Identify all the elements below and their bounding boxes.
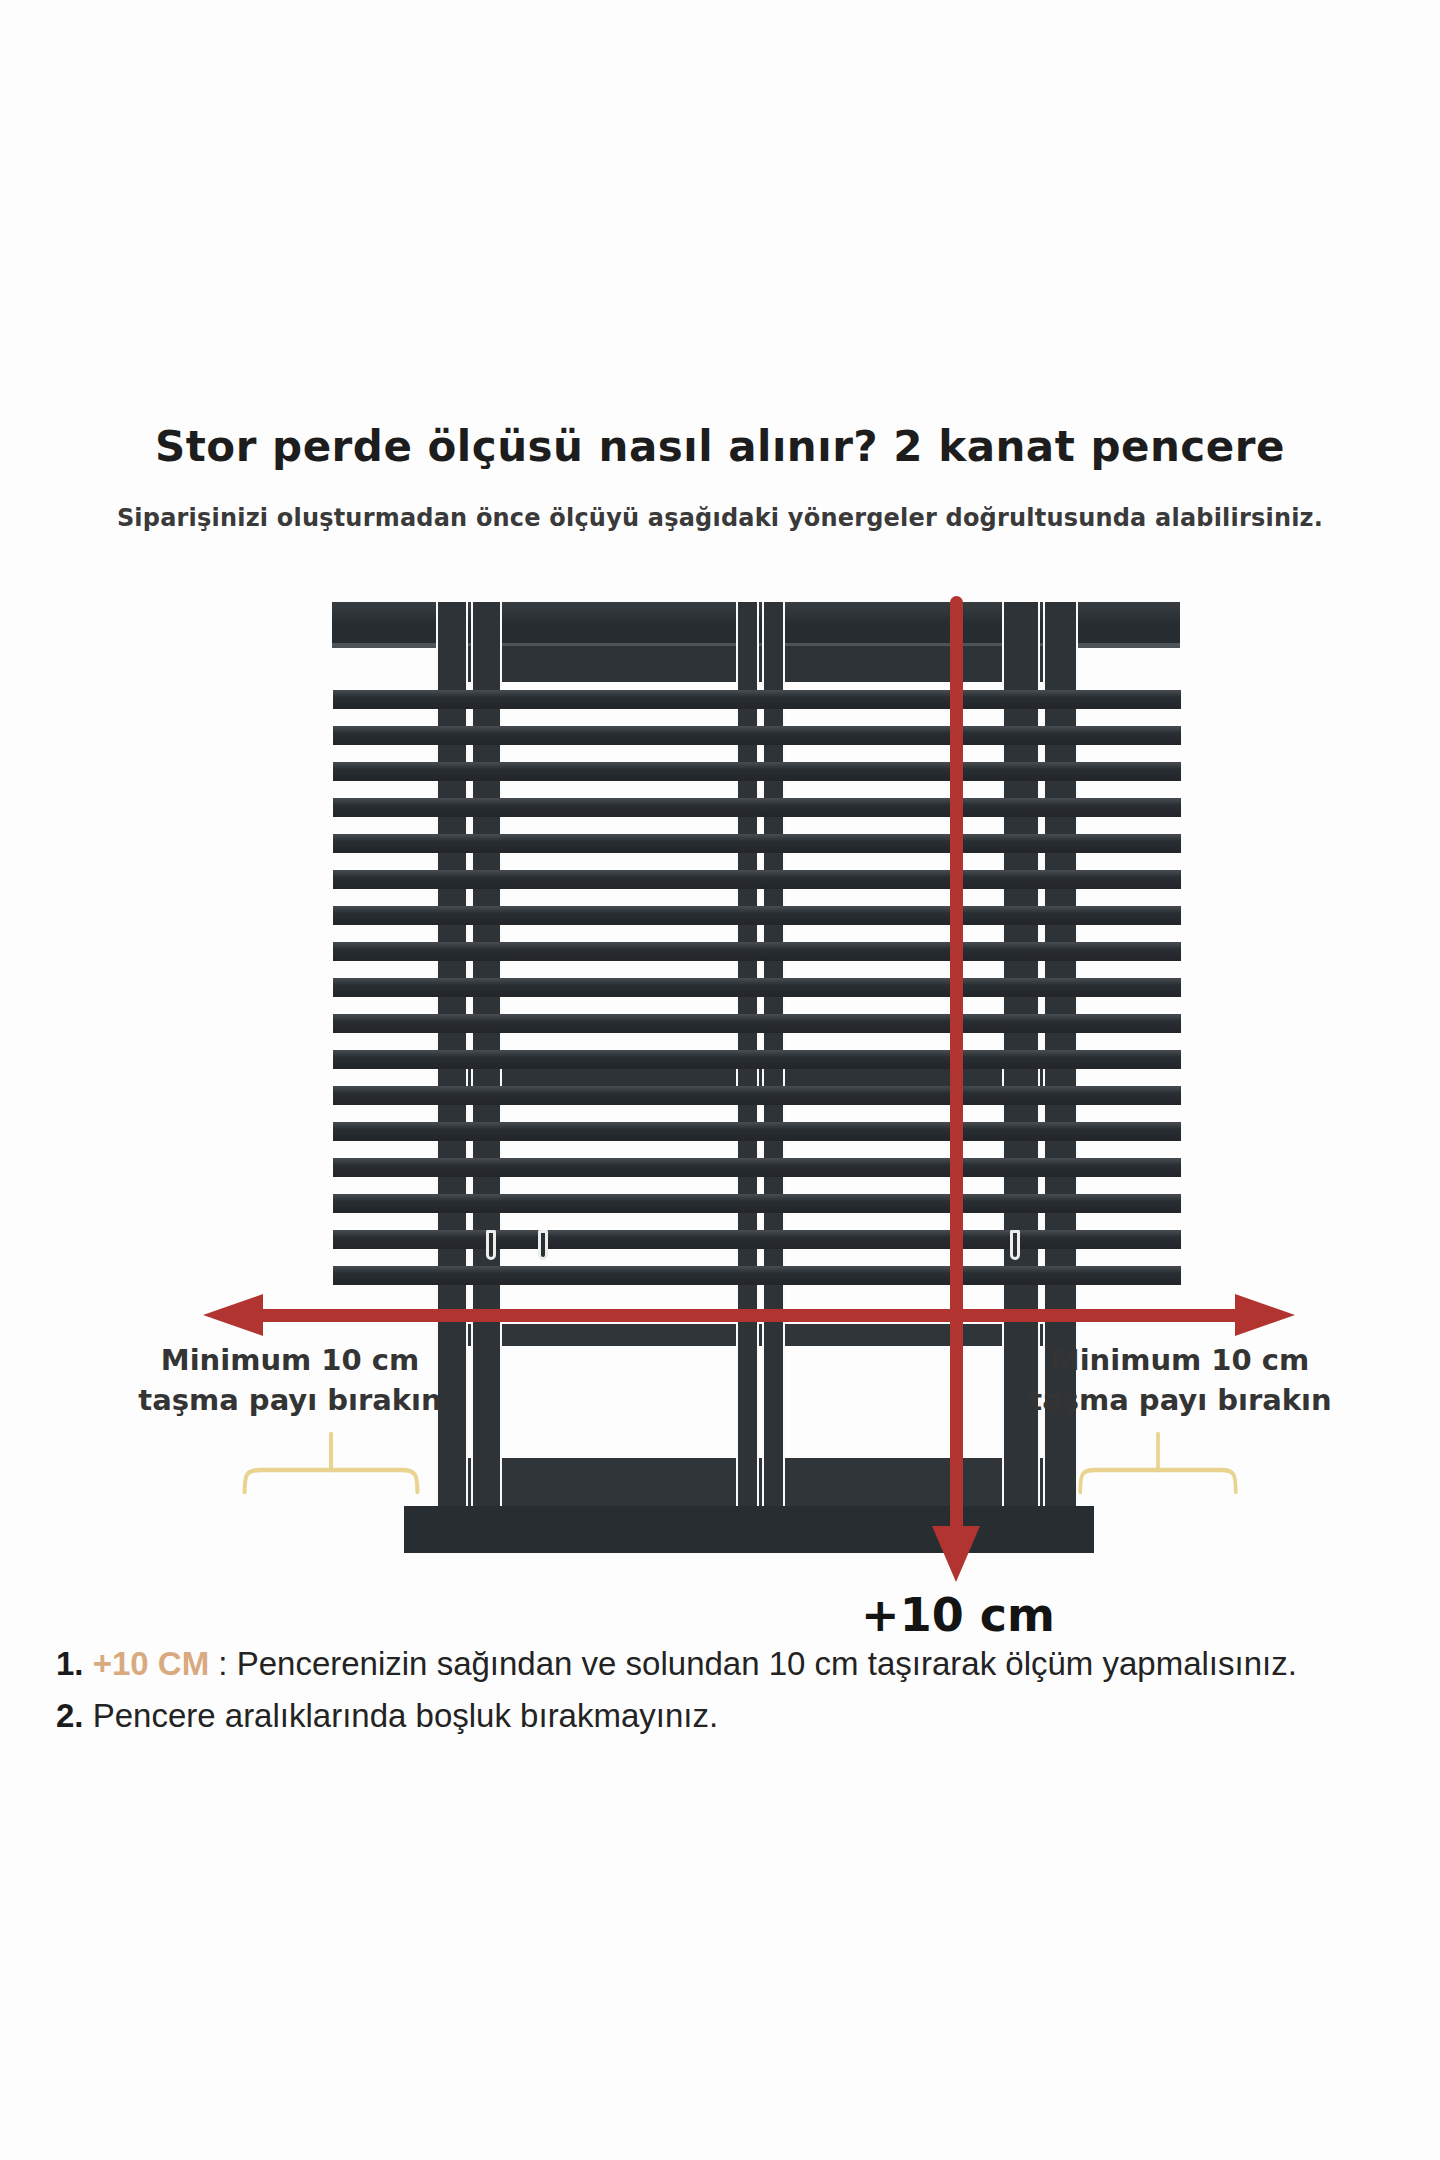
left-overhang-label-line1: Minimum 10 cm bbox=[88, 1340, 492, 1380]
left-underbrace-icon bbox=[241, 1430, 421, 1496]
right-overhang-label: Minimum 10 cm taşma payı bırakın bbox=[978, 1340, 1382, 1420]
right-overhang-label-line2: taşma payı bırakın bbox=[978, 1380, 1382, 1420]
instruction-1-number: 1. bbox=[56, 1645, 84, 1682]
left-overhang-label: Minimum 10 cm taşma payı bırakın bbox=[88, 1340, 492, 1420]
instruction-1-highlight: +10 CM bbox=[93, 1645, 209, 1682]
bottom-measure-label: +10 cm bbox=[806, 1588, 1110, 1642]
instructions-list: 1. +10 CM : Pencerenizin sağından ve sol… bbox=[56, 1638, 1406, 1742]
instruction-item-1: 1. +10 CM : Pencerenizin sağından ve sol… bbox=[56, 1638, 1406, 1690]
instruction-item-2: 2. Pencere aralıklarında boşluk bırakmay… bbox=[56, 1690, 1406, 1742]
right-underbrace-icon bbox=[1077, 1430, 1239, 1496]
right-overhang-label-line1: Minimum 10 cm bbox=[978, 1340, 1382, 1380]
instruction-1-text: : Pencerenizin sağından ve solundan 10 c… bbox=[209, 1645, 1297, 1682]
annotation-layer: Minimum 10 cm taşma payı bırakın Minimum… bbox=[0, 0, 1440, 2160]
instruction-2-number: 2. bbox=[56, 1697, 84, 1734]
instruction-2-text: Pencere aralıklarında boşluk bırakmayını… bbox=[84, 1697, 719, 1734]
infographic-page: Stor perde ölçüsü nasıl alınır? 2 kanat … bbox=[0, 0, 1440, 2160]
left-overhang-label-line2: taşma payı bırakın bbox=[88, 1380, 492, 1420]
